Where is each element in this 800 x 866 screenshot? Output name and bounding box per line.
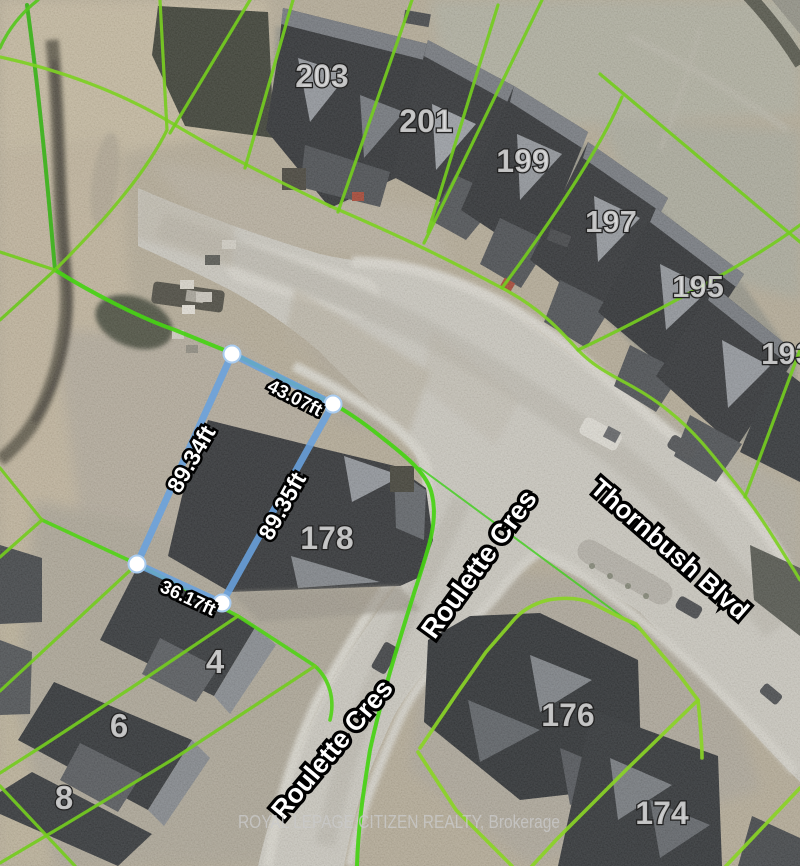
- svg-text:195: 195: [672, 269, 724, 304]
- svg-text:4: 4: [206, 643, 225, 680]
- svg-text:ROYAL LEPAGE CITIZEN REALTY, B: ROYAL LEPAGE CITIZEN REALTY, Brokerage: [238, 812, 560, 832]
- svg-text:6: 6: [110, 707, 128, 744]
- svg-text:197: 197: [585, 204, 637, 239]
- svg-text:199: 199: [496, 143, 549, 179]
- svg-text:178: 178: [300, 520, 353, 556]
- svg-text:176: 176: [541, 697, 594, 733]
- svg-text:193: 193: [761, 336, 800, 371]
- svg-text:203: 203: [295, 58, 348, 94]
- svg-text:8: 8: [55, 779, 73, 816]
- svg-text:201: 201: [399, 103, 452, 139]
- svg-text:174: 174: [635, 795, 689, 831]
